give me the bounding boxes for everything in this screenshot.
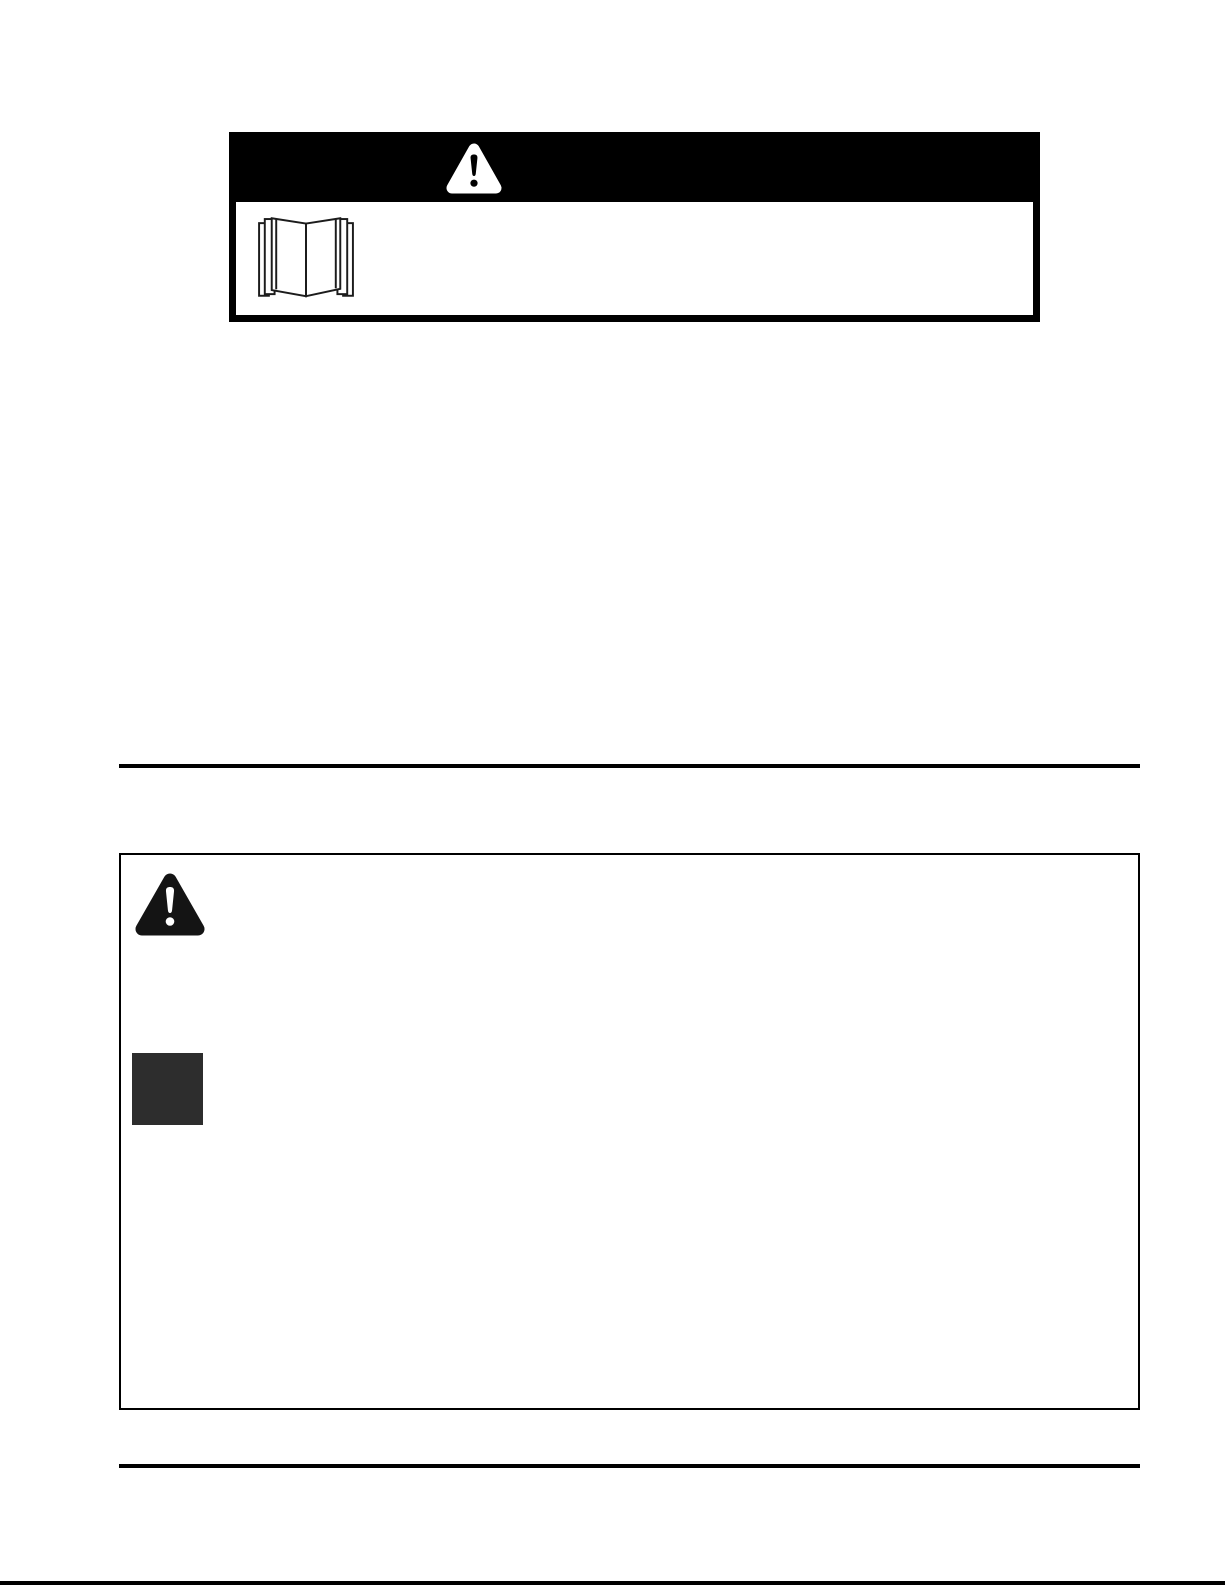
alert-triangle-icon bbox=[133, 871, 207, 939]
footer-divider bbox=[119, 1464, 1140, 1468]
open-book-icon bbox=[247, 206, 365, 308]
caution-body bbox=[236, 202, 1033, 315]
warning-box bbox=[119, 853, 1140, 1410]
caution-banner bbox=[236, 132, 1033, 202]
manual-page bbox=[0, 0, 1225, 1585]
caution-header-box bbox=[229, 132, 1040, 322]
section-divider bbox=[119, 764, 1140, 768]
alert-triangle-icon bbox=[443, 141, 505, 197]
redacted-square bbox=[132, 1053, 203, 1125]
page-bottom-edge bbox=[0, 1581, 1225, 1585]
